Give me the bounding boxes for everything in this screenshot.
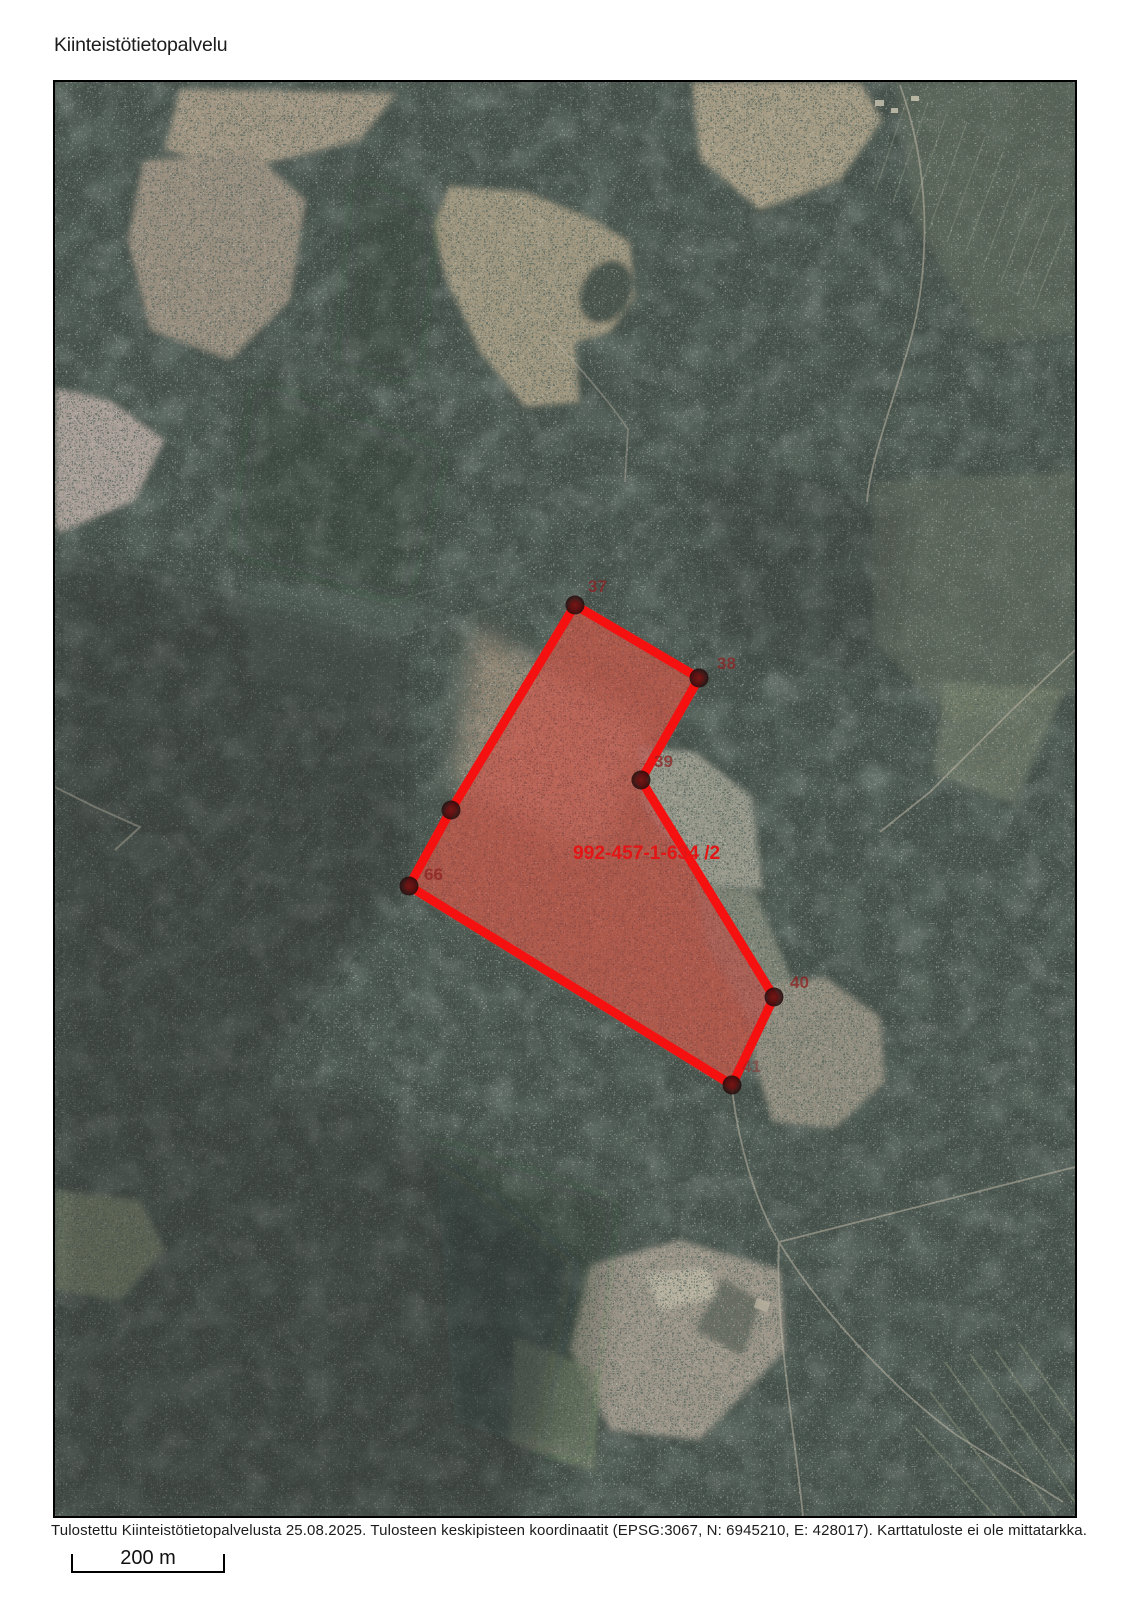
svg-text:38: 38: [717, 654, 736, 673]
svg-text:37: 37: [588, 577, 607, 596]
svg-text:992-457-1-634 /2: 992-457-1-634 /2: [573, 843, 720, 864]
svg-text:40: 40: [790, 973, 809, 992]
svg-text:66: 66: [424, 865, 443, 884]
svg-text:41: 41: [742, 1057, 761, 1076]
svg-text:39: 39: [654, 752, 673, 771]
